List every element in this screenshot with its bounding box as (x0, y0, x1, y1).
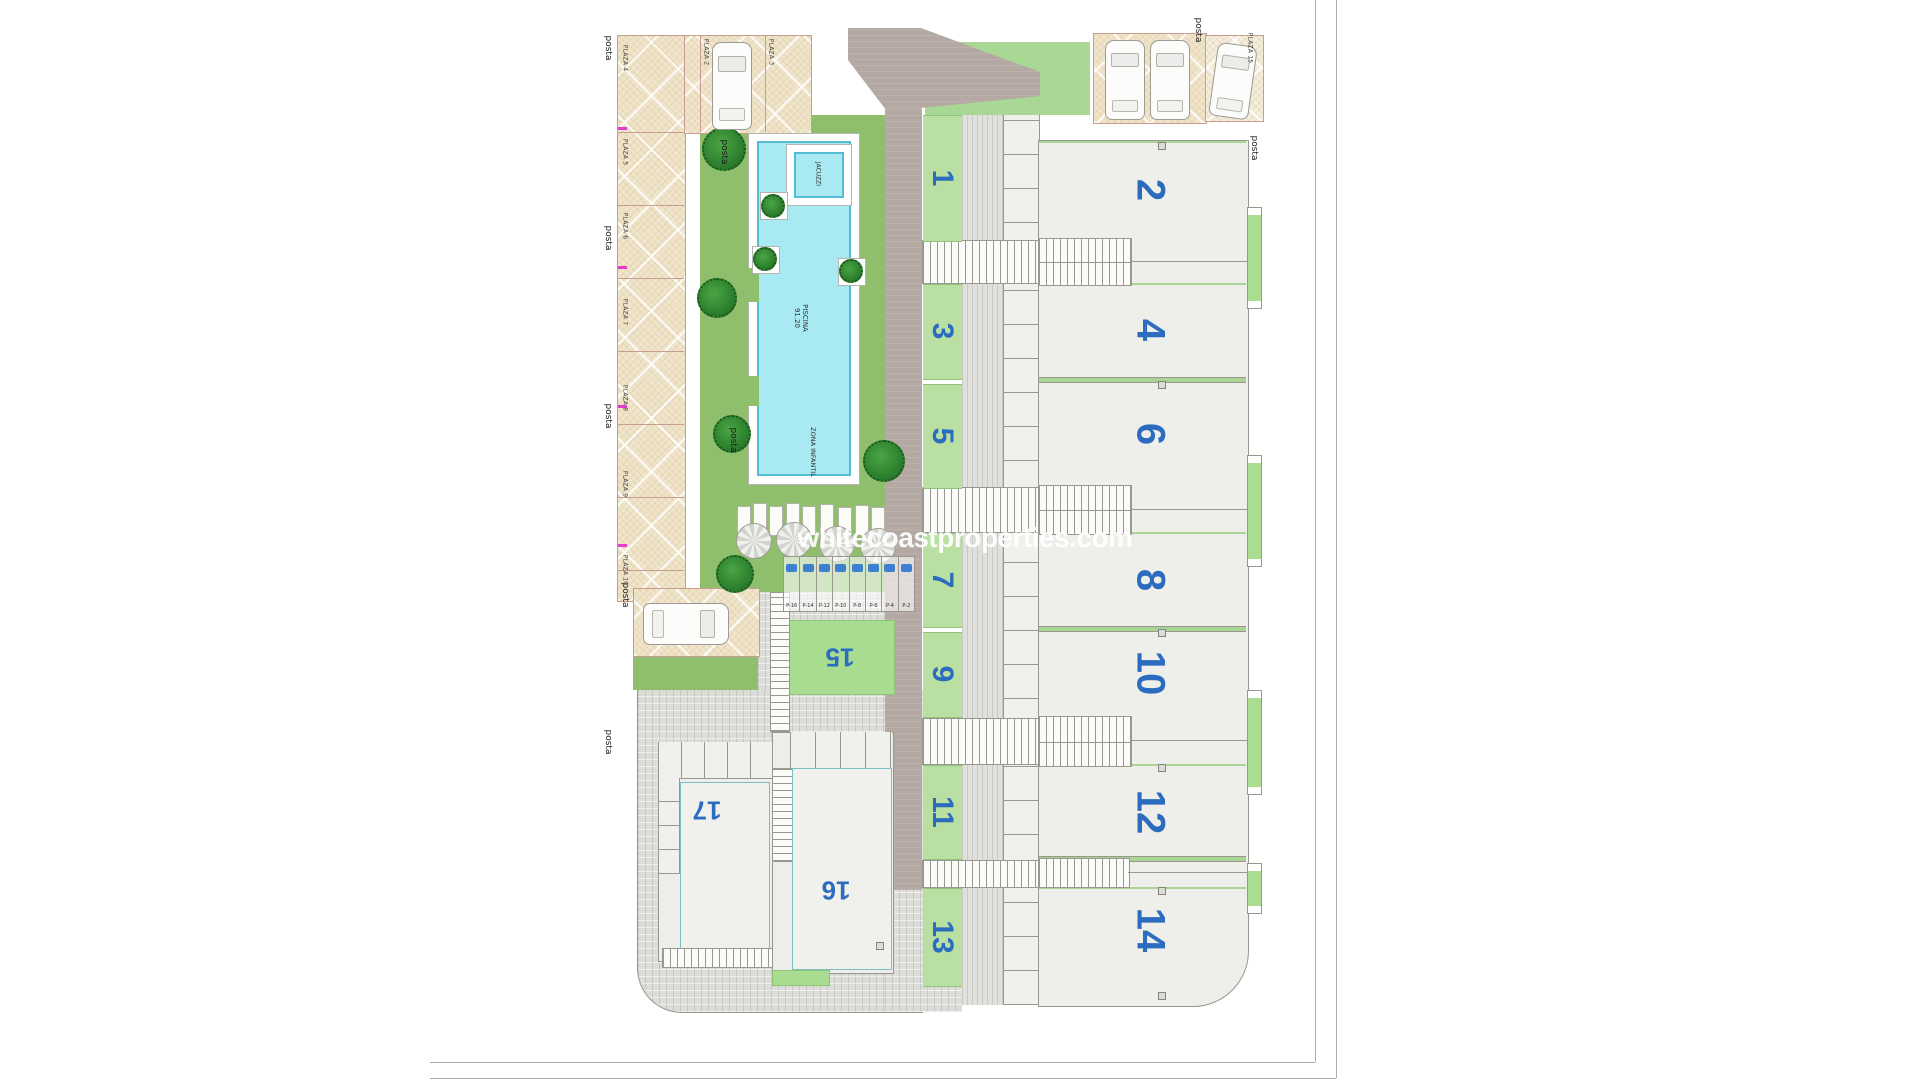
garden-strip-number-5: 5 (925, 428, 959, 445)
site-plan: P-16 P-14 P-12 P-10 P-8 P-6 P-4 P-2 post… (0, 0, 1920, 1080)
unit-divider (1128, 872, 1247, 873)
car-icon (884, 564, 895, 572)
plaza-label: PLAZA 6 (622, 213, 629, 240)
p-cell: P-8 (850, 557, 866, 611)
stairs (662, 948, 774, 968)
plaza-label: PLAZA 15 (1247, 33, 1254, 64)
garden-band (772, 970, 830, 986)
frame-line (430, 1078, 1336, 1079)
jacuzzi-label: JACUZZI (815, 162, 822, 186)
symbol-square (1158, 764, 1166, 772)
symbol-square (1158, 992, 1166, 1000)
posta-label: posta (603, 730, 613, 755)
building-number-2: 2 (1128, 179, 1173, 201)
stall-divider (765, 35, 766, 132)
unit-divider (1130, 261, 1247, 262)
stairs (770, 592, 790, 732)
watermark: whitecoastproperties.com (798, 522, 1133, 554)
garden-strip-number-3: 3 (925, 323, 959, 340)
posta-label: posta (620, 583, 630, 608)
posta-label: posta (728, 428, 738, 453)
stairs (772, 768, 794, 862)
car-icon (852, 564, 863, 572)
tree (697, 278, 737, 318)
stairs (1038, 858, 1130, 888)
unit-number-15: 15 (826, 642, 855, 673)
tree (761, 194, 785, 218)
small-parking-row: P-16 P-14 P-12 P-10 P-8 P-6 P-4 P-2 (783, 556, 915, 612)
car-icon (643, 603, 729, 645)
pink-marker (618, 544, 627, 547)
car-icon (712, 42, 752, 130)
building-number-14: 14 (1128, 908, 1173, 953)
stairs (1038, 238, 1132, 286)
posta-label: posta (719, 140, 729, 165)
p-cell-label: P-6 (866, 603, 881, 609)
garage-cells (790, 732, 892, 769)
p-cell-label: P-14 (800, 603, 815, 609)
car-icon (835, 564, 846, 572)
unit-divider (1039, 626, 1246, 632)
p-cell-label: P-16 (784, 603, 799, 609)
piscina-label: PISCINA 91.20 (793, 304, 809, 332)
unit-number-17: 17 (693, 795, 722, 826)
posta-label: posta (1193, 18, 1203, 43)
building-number-8: 8 (1128, 569, 1173, 591)
stall-divider (617, 132, 684, 133)
building-number-10: 10 (1128, 651, 1173, 696)
p-cell-label: P-10 (833, 603, 848, 609)
stall-divider (700, 35, 701, 132)
piscina-area: 91.20 (793, 304, 801, 332)
stall-divider (617, 351, 684, 352)
tree (863, 440, 905, 482)
symbol-square (876, 942, 884, 950)
plaza-label: PLAZA 7 (622, 299, 629, 326)
garden-strip-number-7: 7 (925, 572, 959, 589)
frame-line (1315, 0, 1316, 1062)
car-icon (901, 564, 912, 572)
crosswalk (922, 860, 1040, 888)
frame-line (430, 1062, 1315, 1063)
unit-edge (1039, 141, 1246, 143)
car-icon (1150, 40, 1190, 120)
piscina-word: PISCINA (801, 304, 809, 332)
p-cell: P-2 (899, 557, 914, 611)
pink-marker (618, 127, 627, 130)
posta-label: posta (603, 36, 613, 61)
p-cell-label: P-12 (817, 603, 832, 609)
symbol-square (1158, 381, 1166, 389)
side-cells (658, 778, 680, 874)
p-cell: P-16 (784, 557, 800, 611)
plaza-label: PLAZA 4 (622, 45, 629, 72)
tree (753, 247, 777, 271)
p-cell-label: P-8 (850, 603, 865, 609)
crosswalk (922, 718, 1040, 765)
plaza-label: PLAZA 10 (622, 555, 629, 586)
crosswalk (922, 240, 1040, 284)
deck-notch (748, 376, 759, 406)
garden-strip-number-13: 13 (925, 920, 959, 953)
building-number-4: 4 (1128, 319, 1173, 341)
stall-divider (617, 278, 684, 279)
stall-divider (617, 424, 684, 425)
symbol-square (1158, 887, 1166, 895)
pink-marker (618, 266, 627, 269)
frame-line (1336, 0, 1337, 1078)
road-entrance (848, 28, 1040, 108)
stairs (1038, 716, 1132, 767)
right-garden-strip (1247, 455, 1262, 567)
right-garden-strip (1247, 690, 1262, 795)
symbol-square (1158, 629, 1166, 637)
car-icon (803, 564, 814, 572)
unit-divider (1039, 377, 1246, 383)
plaza-label: PLAZA 3 (768, 39, 775, 66)
plaza-label: PLAZA 8 (622, 385, 629, 412)
p-cell: P-14 (800, 557, 816, 611)
posta-label: posta (603, 404, 613, 429)
car-icon (1105, 40, 1145, 120)
plaza-label: PLAZA 2 (703, 39, 710, 66)
building-number-6: 6 (1128, 423, 1173, 445)
posta-label: posta (603, 226, 613, 251)
car-icon (786, 564, 797, 572)
p-cell: P-10 (833, 557, 849, 611)
unit-divider (1130, 740, 1247, 741)
garden-strip-number-9: 9 (925, 666, 959, 683)
plaza-label: PLAZA 9 (622, 471, 629, 498)
garden-strip-number-1: 1 (925, 170, 959, 187)
garden-strip-number-11: 11 (925, 796, 959, 828)
p-cell-label: P-4 (882, 603, 897, 609)
car-icon (868, 564, 879, 572)
p-cell: P-6 (866, 557, 882, 611)
p-cell: P-12 (817, 557, 833, 611)
p-cell: P-4 (882, 557, 898, 611)
plaza-label: PLAZA 5 (622, 139, 629, 166)
stall-divider (617, 205, 684, 206)
zona-infantil-label: ZONA INFANTIL (809, 427, 817, 477)
right-garden-strip (1247, 207, 1262, 309)
unit-16-room (792, 768, 892, 970)
right-garden-strip (1247, 863, 1262, 914)
posta-label: posta (1249, 136, 1259, 161)
unit-number-16: 16 (822, 875, 851, 906)
parasol (736, 523, 772, 559)
p-cell-label: P-2 (899, 603, 914, 609)
tree (716, 555, 754, 593)
unit-divider (1130, 509, 1247, 510)
symbol-square (1158, 142, 1166, 150)
garage-cells (658, 742, 772, 779)
car-icon (819, 564, 830, 572)
tree (839, 259, 863, 283)
building-number-12: 12 (1128, 790, 1173, 835)
